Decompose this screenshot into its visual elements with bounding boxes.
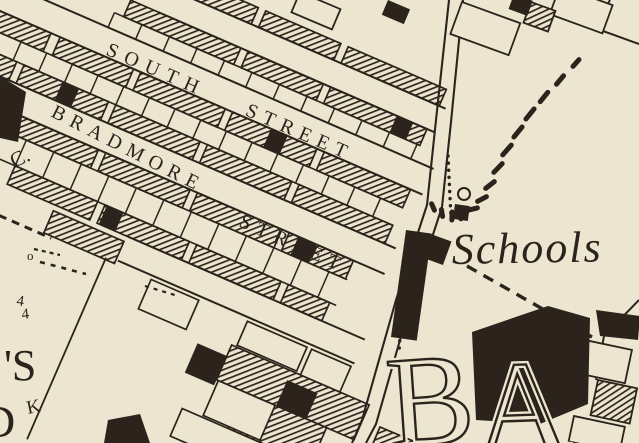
tree-mark-3-label: o	[27, 248, 34, 263]
hachure-mark	[461, 211, 463, 219]
hatched-building	[591, 380, 638, 424]
large-letter-b-label: B	[382, 326, 479, 443]
historic-street-map: SOUTHSTREETBRADMORESTREETSchoolsBBAA'SDC…	[0, 0, 639, 443]
large-letter-a-label: A	[473, 334, 572, 443]
possessive-s-label: 'S	[4, 341, 36, 390]
hachure-mark	[441, 210, 442, 217]
schools-label: Schools	[451, 222, 603, 274]
hachure-mark	[432, 204, 435, 210]
partial-letter-d-label: D	[0, 396, 15, 443]
hachure-mark	[469, 208, 478, 210]
map-canvas: SOUTHSTREETBRADMORESTREETSchoolsBBAA'SDC…	[0, 0, 639, 443]
